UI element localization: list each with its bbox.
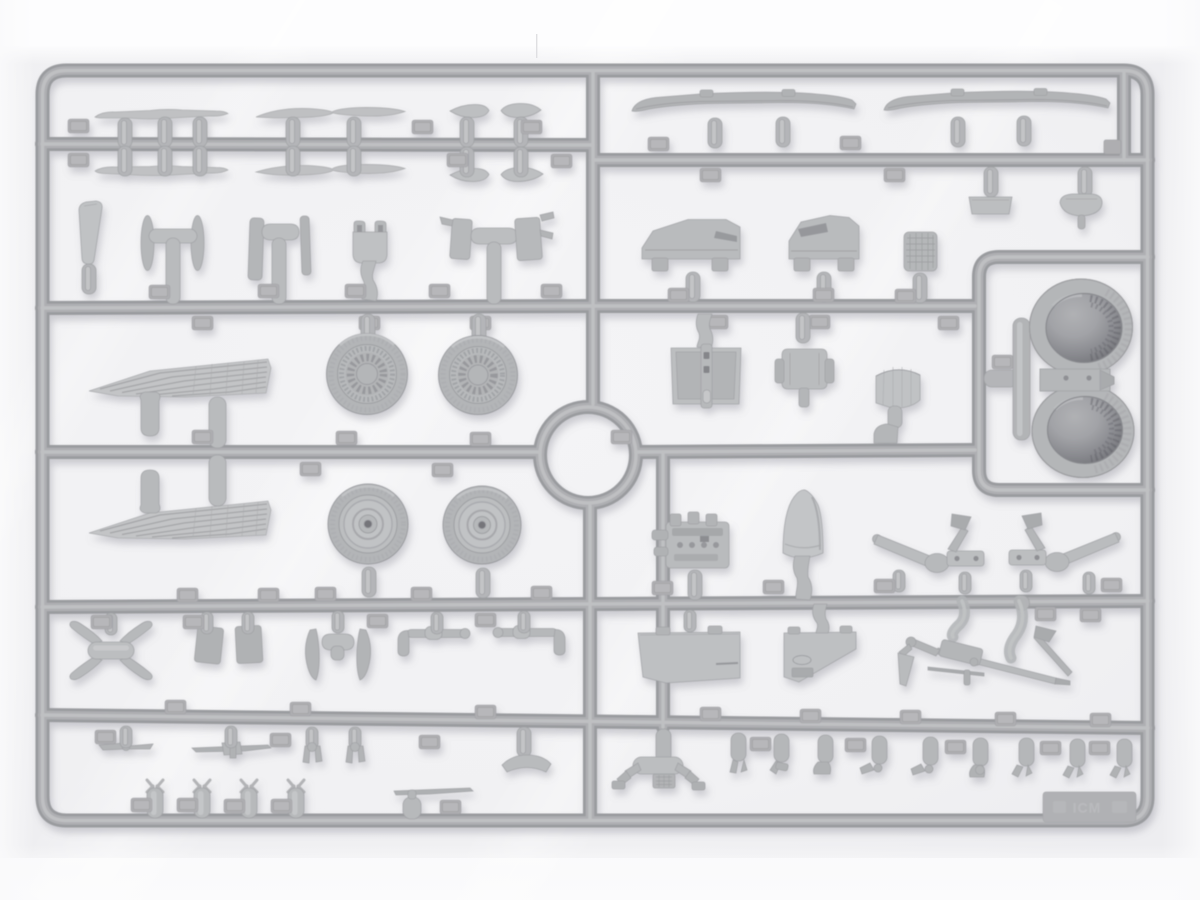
svg-text:ICM: ICM — [1073, 800, 1102, 816]
